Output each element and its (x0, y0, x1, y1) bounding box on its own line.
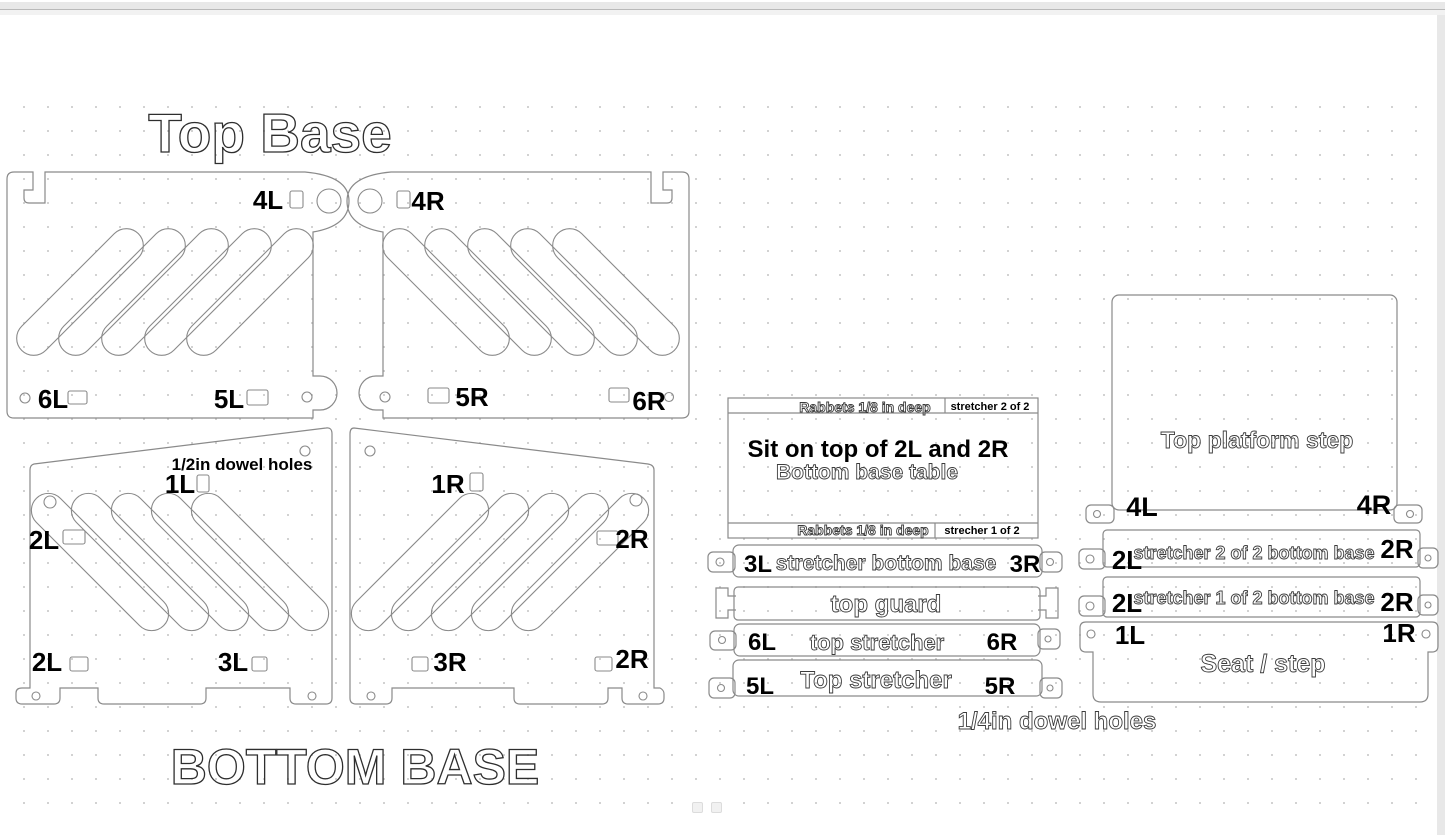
part-label: 2L (32, 647, 62, 677)
cad-drawing: Top Base BOTTOM BASE 1/2in dowel holes 1… (0, 0, 1445, 835)
bar-stretcher-bottom-base[interactable]: 3L stretcher bottom base 3R (708, 545, 1062, 578)
piece-top-platform[interactable]: Top platform step 4L 4R (1086, 295, 1422, 523)
table-note-line2: Bottom base table (776, 461, 958, 484)
stretcher-note-bottom: strecher 1 of 2 (944, 525, 1019, 537)
mortise (609, 388, 629, 402)
rabbets-note-bottom: Rabbets 1/8 in deep (797, 522, 928, 538)
bar-top-stretcher-6[interactable]: 6L top stretcher 6R (710, 624, 1060, 656)
dowel-hole (197, 475, 209, 492)
dowel-hole (44, 496, 56, 508)
part-label: 4R (1357, 490, 1392, 520)
dowel-hole (290, 191, 303, 208)
dowel-hole (639, 692, 647, 700)
part-label: 2L (29, 525, 59, 555)
part-label: 4L (1126, 492, 1158, 522)
dowel-hole (665, 393, 674, 402)
mortise (428, 388, 449, 403)
dowel-hole (380, 392, 390, 402)
dowel-hole (317, 189, 341, 213)
part-label: 3R (1010, 551, 1041, 578)
part-label: 2R (1380, 534, 1413, 564)
mortise (247, 390, 268, 405)
dowel-hole (302, 392, 312, 402)
part-label: 5L (214, 384, 244, 414)
piece-name: stretcher 2 of 2 bottom base (1133, 543, 1374, 563)
dowel-hole (358, 189, 382, 213)
part-label: 6R (987, 629, 1018, 656)
piece-seat-step[interactable]: 1L 1R Seat / step (1080, 618, 1438, 702)
piece-name: Top stretcher (800, 667, 952, 694)
bar-top-stretcher-5[interactable]: 5L Top stretcher 5R (709, 660, 1062, 700)
piece-name: Seat / step (1200, 650, 1325, 678)
part-label: 3R (433, 647, 466, 677)
panel-top-right[interactable]: 4R 5R 6R (347, 172, 689, 418)
mortise (63, 530, 85, 544)
part-label: 2R (1380, 587, 1413, 617)
mortise (252, 657, 267, 671)
part-label: 1R (431, 469, 464, 499)
stretcher-note-top: stretcher 2 of 2 (951, 401, 1030, 413)
part-label: 3L (744, 551, 772, 578)
table-note-line1: Sit on top of 2L and 2R (748, 436, 1009, 463)
piece-name: Top platform step (1161, 427, 1354, 453)
part-label: 4R (411, 186, 444, 216)
mortise (595, 657, 612, 671)
bar-top-guard[interactable]: top guard (716, 587, 1058, 620)
dowel-hole (630, 494, 642, 506)
part-label: 4L (253, 185, 283, 215)
table-piece[interactable]: Rabbets 1/8 in deep stretcher 2 of 2 Sit… (728, 398, 1038, 538)
bar-stretcher-2of2[interactable]: 2L stretcher 2 of 2 bottom base 2R (1079, 530, 1438, 575)
dowel-hole (32, 692, 40, 700)
mortise (412, 657, 428, 671)
label-quarter-dowel: 1/4in dowel holes (958, 708, 1157, 735)
piece-name: stretcher 1 of 2 bottom base (1133, 588, 1374, 608)
dowel-hole (367, 692, 375, 700)
part-label: 1R (1382, 618, 1415, 648)
dowel-hole (365, 446, 375, 456)
dowel-hole (308, 692, 316, 700)
part-label: 3L (218, 647, 248, 677)
part-label: 1L (165, 469, 195, 499)
part-label: 5L (746, 673, 774, 700)
part-label: 6L (748, 629, 776, 656)
mortise (68, 391, 87, 404)
panel-bottom-right[interactable]: 1R 2R 2R 3R (344, 428, 664, 704)
heading-bottom-base: BOTTOM BASE (171, 739, 540, 795)
mortise (70, 657, 88, 671)
piece-name: top stretcher (810, 630, 945, 655)
part-label: 2R (615, 644, 648, 674)
bar-stretcher-1of2[interactable]: 2L stretcher 1 of 2 bottom base 2R (1079, 577, 1438, 618)
part-label: 5R (455, 382, 488, 412)
dowel-hole (470, 473, 483, 491)
part-label: 5R (985, 673, 1016, 700)
part-label: 6R (632, 386, 665, 416)
heading-top-base: Top Base (148, 102, 391, 164)
piece-name: top guard (831, 591, 942, 618)
dowel-hole (20, 393, 30, 403)
part-label: 2R (615, 524, 648, 554)
panel-top-left[interactable]: 4L 6L 5L (7, 172, 349, 418)
canvas-handle-right[interactable] (711, 802, 722, 813)
dowel-hole (397, 191, 410, 208)
part-label: 6L (38, 384, 68, 414)
part-label: 1L (1115, 620, 1145, 650)
piece-name: stretcher bottom base (776, 552, 997, 575)
canvas-handle-left[interactable] (692, 802, 703, 813)
rabbets-note-top: Rabbets 1/8 in deep (799, 399, 930, 415)
